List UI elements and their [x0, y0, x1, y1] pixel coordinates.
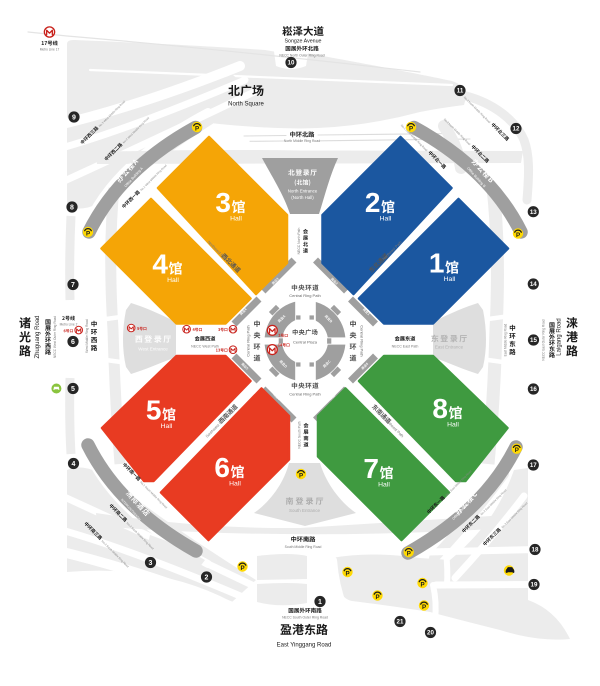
svg-text:P: P: [516, 232, 520, 239]
svg-text:20: 20: [427, 630, 434, 637]
svg-text:NECC West Outer Ring Road: NECC West Outer Ring Road: [53, 316, 57, 358]
svg-text:NECC South Outer Ring Road: NECC South Outer Ring Road: [282, 616, 328, 620]
svg-text:P: P: [86, 230, 90, 237]
svg-text:Zhuguang Road: Zhuguang Road: [35, 315, 41, 358]
svg-text:Central Plaza: Central Plaza: [293, 340, 318, 345]
svg-text:18: 18: [532, 547, 539, 554]
svg-text:North Middle Ring Road: North Middle Ring Road: [284, 139, 320, 143]
svg-text:P: P: [195, 125, 199, 132]
svg-text:West Middle Ring Road: West Middle Ring Road: [85, 319, 89, 353]
svg-text:P: P: [241, 565, 245, 572]
svg-text:Metro Line 17: Metro Line 17: [40, 48, 60, 52]
svg-text:P: P: [421, 581, 425, 588]
svg-text:P: P: [376, 594, 380, 601]
svg-text:13: 13: [530, 209, 537, 216]
svg-text:6: 6: [214, 452, 230, 483]
svg-text:5: 5: [146, 395, 162, 426]
svg-text:8: 8: [70, 205, 74, 212]
svg-text:9: 9: [72, 115, 76, 122]
svg-text:15: 15: [530, 337, 537, 344]
svg-text:19: 19: [531, 582, 538, 589]
svg-text:South Entrance: South Entrance: [289, 508, 321, 513]
svg-text:Central Ring Path: Central Ring Path: [246, 325, 251, 357]
svg-text:P: P: [407, 550, 411, 557]
svg-text:South Middle Ring Road: South Middle Ring Road: [285, 545, 322, 549]
svg-text:Hall: Hall: [378, 482, 390, 489]
svg-text:1: 1: [318, 599, 322, 606]
svg-text:P: P: [515, 447, 519, 454]
svg-text:11: 11: [457, 88, 464, 95]
svg-text:North Entrance: North Entrance: [288, 189, 318, 194]
svg-text:Songze Avenue: Songze Avenue: [284, 39, 321, 45]
svg-text:1: 1: [429, 248, 445, 279]
svg-text:10: 10: [288, 60, 295, 67]
svg-text:NECC East Outer Ring Road: NECC East Outer Ring Road: [542, 319, 546, 360]
svg-text:NECC North Outer Ring Road: NECC North Outer Ring Road: [279, 54, 324, 58]
svg-text:2: 2: [205, 575, 209, 582]
svg-text:P: P: [422, 604, 426, 611]
svg-text:P: P: [409, 125, 413, 132]
svg-text:Hall: Hall: [167, 277, 179, 284]
svg-text:NECC East Path: NECC East Path: [392, 345, 419, 349]
svg-text:NECC West Path: NECC West Path: [191, 345, 219, 349]
svg-text:21: 21: [397, 619, 404, 626]
svg-text:Metro Line 2: Metro Line 2: [60, 323, 78, 327]
svg-text:P: P: [346, 570, 350, 577]
svg-text:Hall: Hall: [161, 423, 173, 430]
svg-text:(North Hall): (North Hall): [291, 195, 314, 200]
svg-text:Central Ring Path: Central Ring Path: [360, 325, 365, 357]
svg-text:3: 3: [149, 560, 153, 567]
svg-text:5: 5: [71, 386, 75, 393]
svg-text:North Square: North Square: [228, 102, 264, 108]
svg-text:P: P: [299, 472, 303, 479]
svg-text:West Entrance: West Entrance: [138, 347, 168, 352]
svg-text:7: 7: [363, 453, 379, 484]
svg-text:6: 6: [71, 339, 75, 346]
svg-text:3: 3: [215, 187, 231, 218]
svg-text:Central Ring Path: Central Ring Path: [289, 392, 321, 397]
svg-text:17: 17: [530, 462, 537, 469]
svg-text:8: 8: [432, 393, 448, 424]
svg-text:2: 2: [365, 187, 381, 218]
svg-text:Hall: Hall: [444, 276, 456, 283]
svg-text:Hall: Hall: [229, 481, 241, 488]
svg-text:12: 12: [513, 126, 520, 133]
svg-text:4: 4: [152, 249, 168, 280]
svg-text:16: 16: [530, 386, 537, 393]
svg-text:4: 4: [72, 461, 76, 468]
svg-text:East Middle Ring Road: East Middle Ring Road: [504, 323, 508, 356]
svg-text:Hall: Hall: [230, 216, 242, 223]
svg-text:East Entrance: East Entrance: [435, 345, 464, 350]
svg-text:Laigang Road: Laigang Road: [557, 318, 563, 355]
svg-text:NECC North Path: NECC North Path: [297, 228, 301, 255]
svg-text:East Yinggang Road: East Yinggang Road: [277, 643, 332, 649]
svg-text:NECC South Path: NECC South Path: [298, 421, 302, 448]
svg-text:Central Ring Path: Central Ring Path: [289, 293, 321, 298]
svg-text:Hall: Hall: [447, 422, 459, 429]
svg-text:14: 14: [530, 281, 537, 288]
svg-text:Hall: Hall: [380, 216, 392, 223]
svg-text:7: 7: [71, 282, 75, 289]
